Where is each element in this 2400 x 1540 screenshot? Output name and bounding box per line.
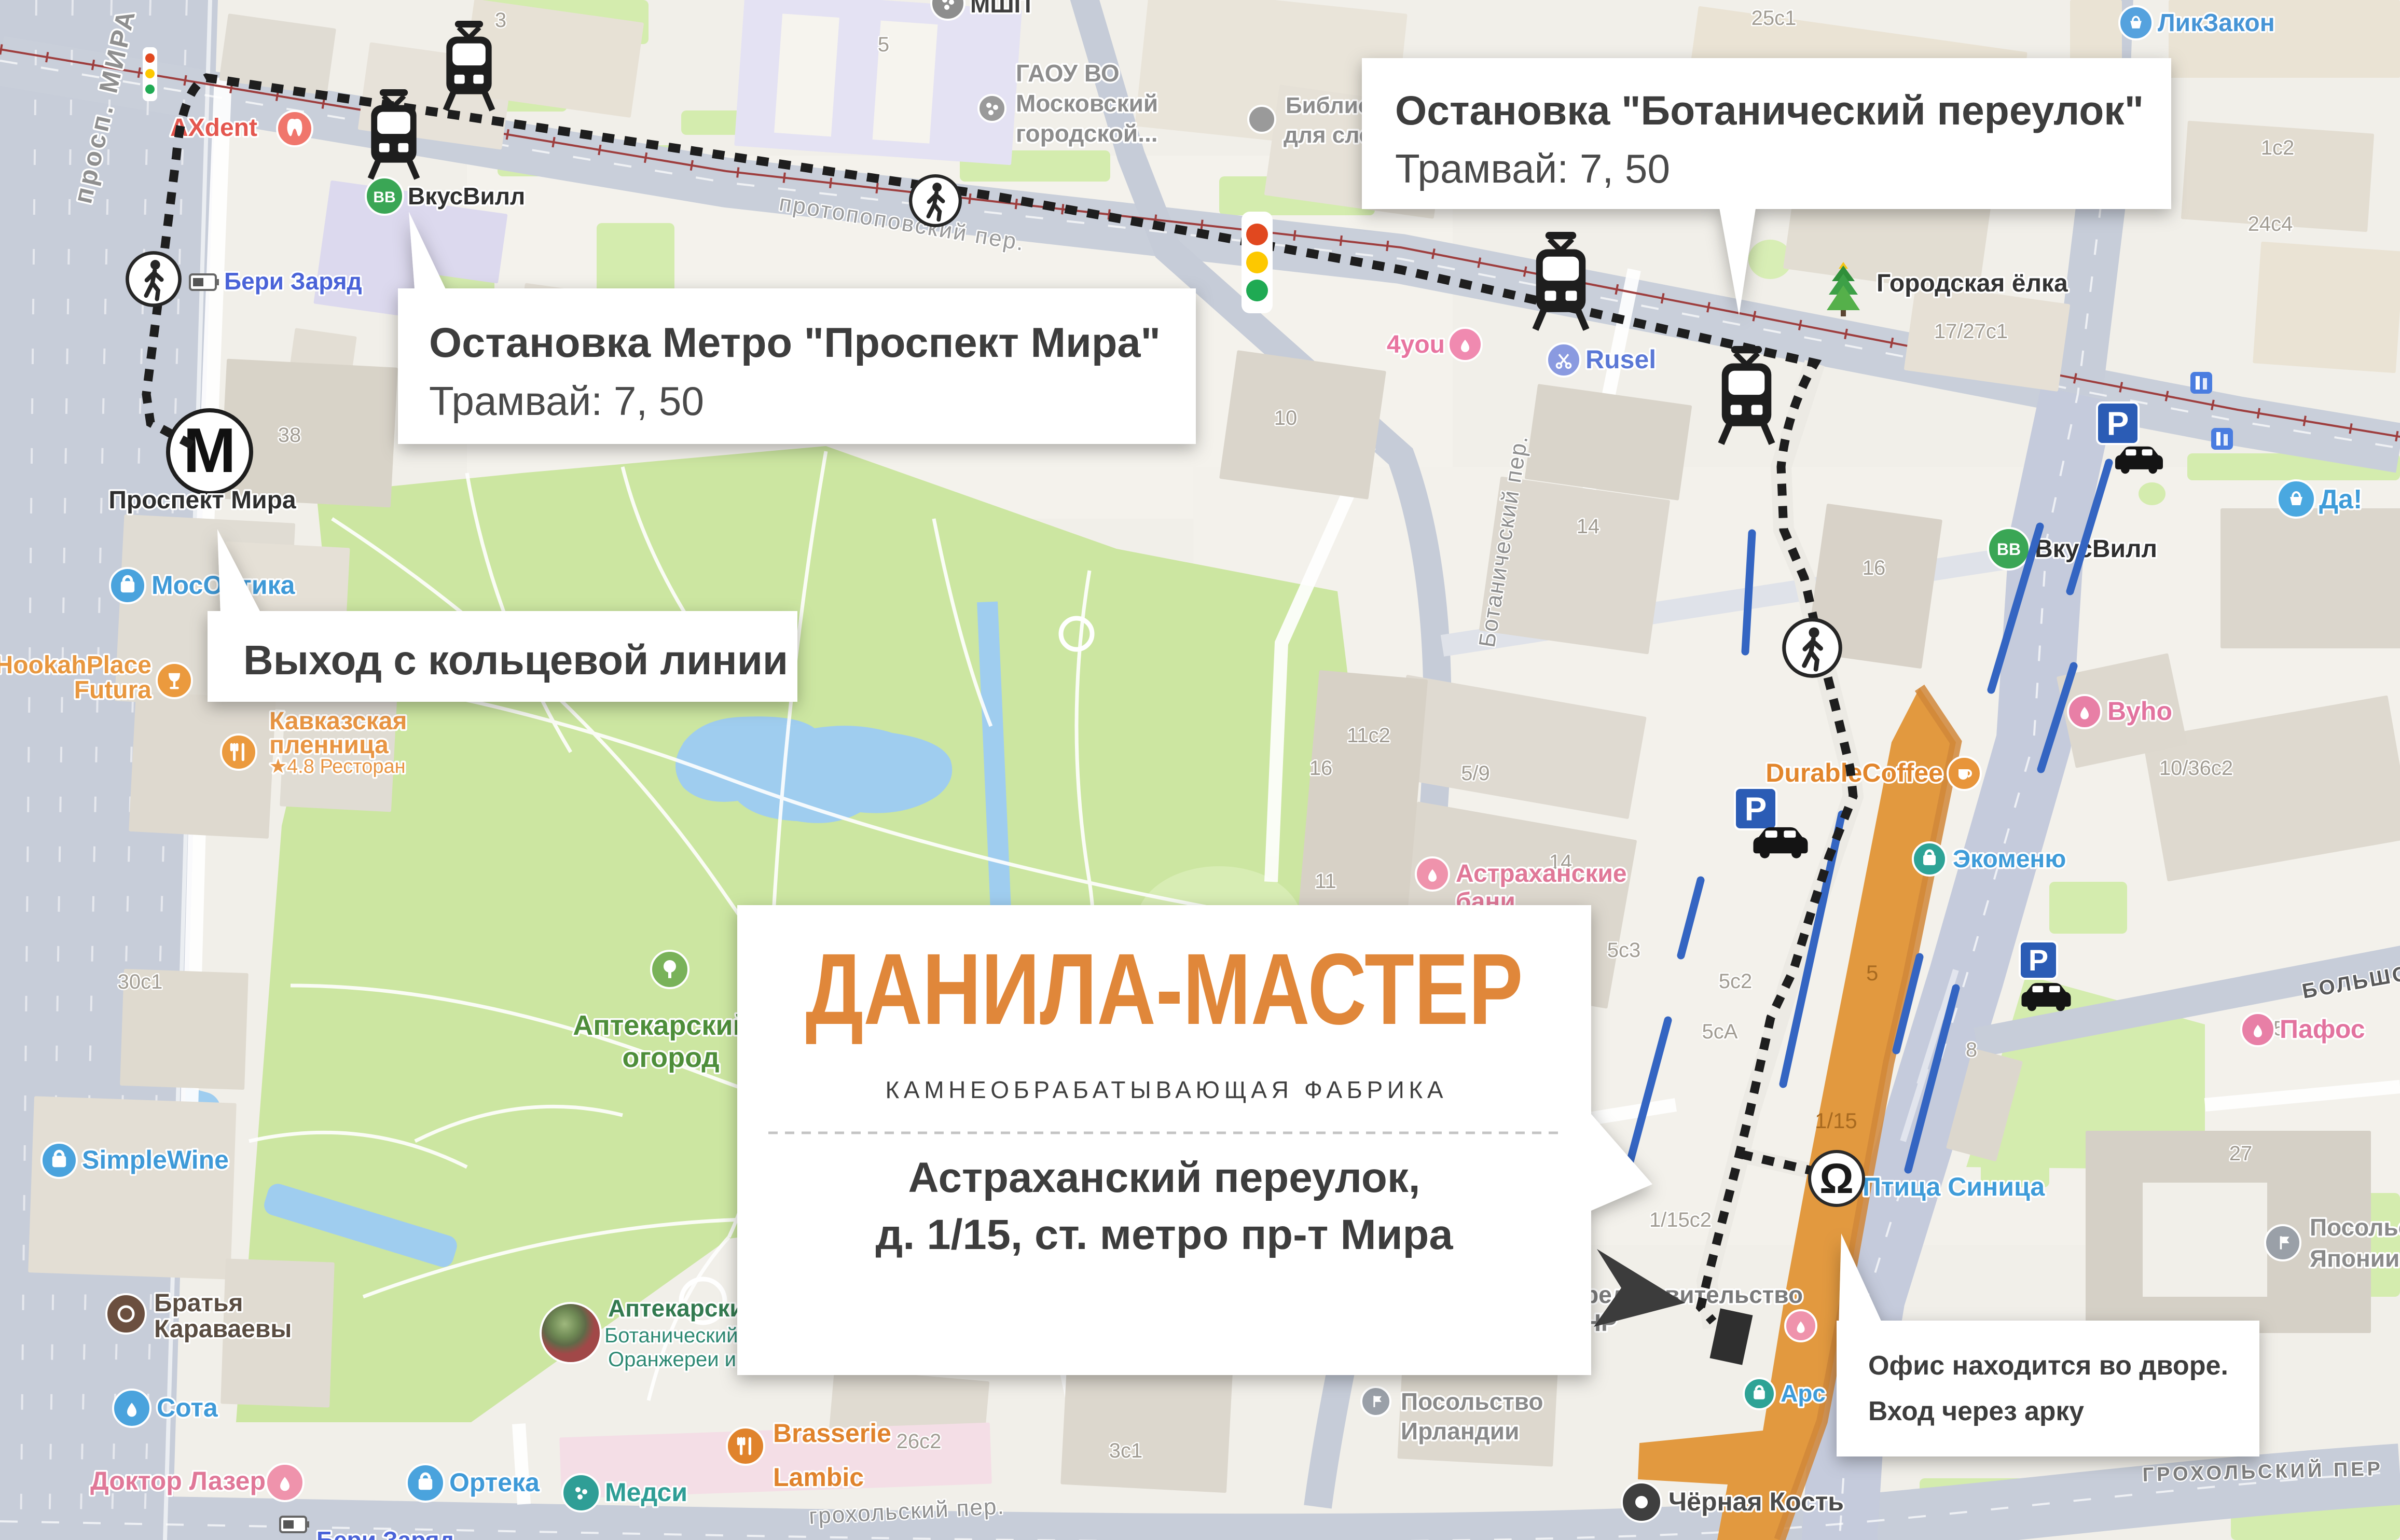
svg-text:1/15с2: 1/15с2 [1649, 1209, 1712, 1231]
svg-text:3с1: 3с1 [1109, 1439, 1143, 1462]
svg-text:5сА: 5сА [1702, 1020, 1738, 1043]
svg-text:огород: огород [622, 1042, 719, 1073]
svg-text:ВВ: ВВ [1997, 540, 2021, 559]
svg-text:Городская ёлка: Городская ёлка [1877, 270, 2068, 297]
svg-text:ВВ: ВВ [373, 189, 395, 206]
svg-text:SimpleWine: SimpleWine [82, 1145, 229, 1174]
svg-text:Вход через арку: Вход через арку [1868, 1396, 2084, 1426]
svg-text:★4.8 Ресторан: ★4.8 Ресторан [269, 756, 406, 778]
svg-text:25с1: 25с1 [1751, 7, 1797, 30]
svg-text:Астраханские: Астраханские [1456, 860, 1627, 887]
svg-text:Выход с кольцевой линии: Выход с кольцевой линии [243, 637, 788, 683]
svg-text:Экоменю: Экоменю [1953, 845, 2066, 873]
svg-text:МШП: МШП [970, 0, 1031, 18]
svg-text:городской...: городской... [1016, 120, 1158, 147]
svg-text:Трамвай: 7, 50: Трамвай: 7, 50 [1395, 146, 1670, 191]
svg-text:14: 14 [1577, 515, 1600, 538]
svg-text:Представительство: Представительство [1567, 1281, 1803, 1308]
svg-text:Бери Заряд: Бери Заряд [316, 1527, 454, 1540]
svg-text:4you: 4you [1387, 331, 1445, 358]
svg-text:Проспект Мира: Проспект Мира [108, 487, 296, 514]
svg-text:Бери Заряд: Бери Заряд [224, 268, 362, 295]
svg-text:3: 3 [495, 9, 506, 32]
svg-text:Rusel: Rusel [1585, 345, 1656, 374]
svg-text:Караваевы: Караваевы [154, 1315, 292, 1343]
svg-text:Арс: Арс [1781, 1380, 1826, 1407]
svg-text:1/15: 1/15 [1815, 1108, 1857, 1133]
svg-text:10: 10 [1274, 407, 1298, 429]
svg-text:P: P [2107, 405, 2129, 442]
svg-text:Астраханский переулок,: Астраханский переулок, [908, 1154, 1420, 1201]
svg-text:24с4: 24с4 [2248, 213, 2293, 235]
svg-text:17/27с1: 17/27с1 [1934, 320, 2008, 343]
svg-text:Офис находится во дворе.: Офис находится во дворе. [1868, 1351, 2228, 1381]
svg-text:пленница: пленница [269, 731, 389, 759]
svg-text:Пафос: Пафос [2280, 1015, 2365, 1044]
svg-text:ГАОУ ВО: ГАОУ ВО [1016, 60, 1120, 87]
svg-text:Ω: Ω [1819, 1155, 1854, 1202]
svg-text:Ортека: Ортека [449, 1468, 540, 1497]
svg-text:Brasserie: Brasserie [773, 1419, 891, 1448]
svg-text:Аптекарский: Аптекарский [573, 1010, 750, 1041]
svg-text:5: 5 [1866, 961, 1878, 985]
svg-text:5с3: 5с3 [1607, 939, 1641, 962]
svg-text:11: 11 [1315, 870, 1336, 893]
svg-text:26с2: 26с2 [896, 1430, 942, 1453]
svg-text:Чёрная Кость: Чёрная Кость [1668, 1487, 1844, 1516]
svg-text:1с2: 1с2 [2261, 136, 2295, 159]
svg-text:М: М [183, 415, 236, 485]
svg-text:Московский: Московский [1016, 90, 1158, 117]
svg-text:Братья: Братья [154, 1289, 243, 1317]
svg-text:Остановка Метро "Проспект Мира: Остановка Метро "Проспект Мира" [429, 320, 1161, 366]
svg-text:10/36с2: 10/36с2 [2159, 757, 2233, 780]
svg-text:16: 16 [1863, 557, 1886, 579]
svg-text:ВкусВилл: ВкусВилл [2035, 535, 2157, 563]
svg-text:Доктор Лазер: Доктор Лазер [90, 1466, 266, 1495]
svg-text:5/9: 5/9 [1461, 762, 1490, 785]
svg-text:Птица Синица: Птица Синица [1863, 1172, 2045, 1201]
svg-text:ЛикЗакон: ЛикЗакон [2158, 9, 2275, 37]
svg-text:Lambic: Lambic [773, 1463, 864, 1492]
svg-text:5: 5 [878, 33, 889, 56]
svg-text:ДАНИЛА-МАСТЕР: ДАНИЛА-МАСТЕР [806, 933, 1523, 1046]
svg-text:8: 8 [1966, 1038, 1977, 1061]
svg-text:P: P [2029, 944, 2048, 977]
svg-text:Ирландии: Ирландии [1401, 1418, 1519, 1445]
svg-text:16: 16 [1309, 757, 1333, 780]
svg-text:Byho: Byho [2107, 697, 2172, 726]
svg-text:Посольство: Посольство [2310, 1214, 2400, 1241]
svg-text:HookahPlace: HookahPlace [0, 651, 151, 679]
svg-text:11с2: 11с2 [1347, 724, 1390, 747]
svg-text:P: P [1745, 790, 1767, 827]
svg-text:д. 1/15, ст. метро пр-т Мира: д. 1/15, ст. метро пр-т Мира [876, 1211, 1454, 1258]
svg-text:5с2: 5с2 [1719, 970, 1753, 993]
svg-text:ВкусВилл: ВкусВилл [408, 183, 525, 210]
svg-text:Сота: Сота [157, 1393, 218, 1422]
svg-text:Медси: Медси [605, 1478, 687, 1507]
svg-text:30с1: 30с1 [118, 970, 163, 993]
svg-text:Посольство: Посольство [1401, 1388, 1543, 1415]
svg-text:Трамвай: 7, 50: Трамвай: 7, 50 [429, 378, 704, 424]
svg-text:27: 27 [2229, 1142, 2253, 1165]
svg-text:Futura: Futura [74, 676, 152, 704]
svg-text:Японии: Японии [2310, 1245, 2399, 1272]
svg-text:Да!: Да! [2319, 484, 2362, 515]
svg-text:Остановка "Ботанический переул: Остановка "Ботанический переулок" [1395, 87, 2144, 133]
svg-text:38: 38 [278, 424, 301, 447]
